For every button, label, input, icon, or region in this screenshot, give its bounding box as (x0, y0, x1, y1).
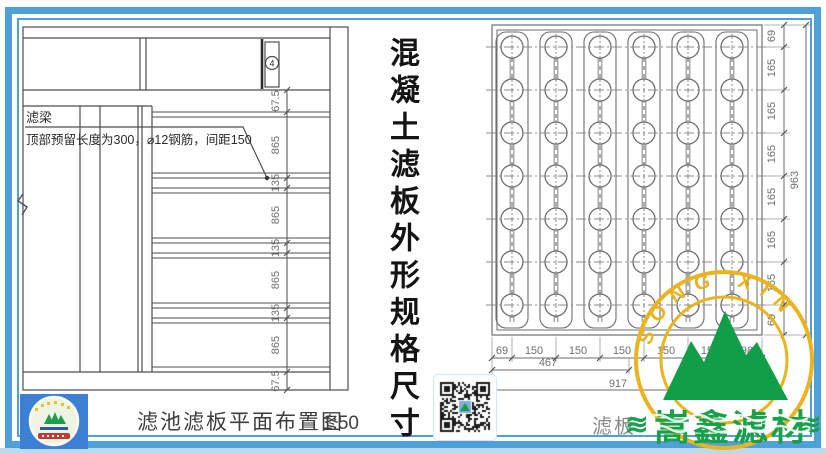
dim-label: 69 (496, 345, 508, 357)
dim-label: 135 (270, 239, 282, 257)
dim-label: 865 (270, 136, 282, 154)
dim-total-label: 963 (789, 171, 801, 189)
left-structure-lines (23, 27, 330, 390)
dim-subtotal-label: 467 (539, 357, 557, 369)
seal-text-bar (40, 427, 68, 430)
dim-label: 67.5 (270, 90, 282, 111)
dim-label: 150 (525, 345, 543, 357)
left-drawing-scale: 1:50 (322, 413, 359, 434)
dim-total-label: 917 (609, 378, 627, 390)
leader-title: 滤梁 (26, 110, 52, 125)
dim-label: 865 (270, 271, 282, 289)
dim-label: 865 (270, 336, 282, 354)
dim-label: 69 (766, 30, 778, 42)
dim-label: 165 (766, 231, 778, 249)
watermark-flourish-right: ≋ (798, 409, 821, 440)
watermark: ≋ 嵩鑫滤材 ≋ (625, 407, 821, 448)
leader-dot (265, 176, 269, 180)
leader-note: 顶部预留长度为300，⌀12钢筋，间距150 (26, 132, 252, 147)
dim-label: 150 (569, 345, 587, 357)
dim-label: 67.5 (270, 370, 282, 391)
dim-label: 165 (766, 188, 778, 206)
left-drawing (18, 27, 348, 390)
dim-label: 135 (270, 304, 282, 322)
blueprint-page: 混凝土滤板外形规格尺寸 4 滤梁 顶部预留长度为300，⌀12钢筋，间距150 … (0, 0, 826, 453)
watermark-flourish-left: ≋ (625, 409, 648, 440)
company-logo (20, 394, 88, 449)
qr-code (438, 380, 492, 434)
left-drawing-caption: 滤池滤板平面布置图 (137, 411, 344, 434)
dim-label: 150 (657, 345, 675, 357)
dim-label: 865 (270, 206, 282, 224)
qr-code-panel (433, 374, 497, 441)
dim-label: 165 (766, 59, 778, 77)
left-dim-chain-labels: 67.5 865 135 865 135 865 135 865 67.5 (270, 90, 282, 391)
company-seal-svg (20, 394, 88, 449)
dim-label: 165 (766, 102, 778, 120)
left-drawing-texts: 4 滤梁 顶部预留长度为300，⌀12钢筋，间距150 67.5 865 135… (26, 59, 359, 435)
dim-label: 165 (766, 145, 778, 163)
filter-plate-bands (152, 112, 330, 372)
detail-marker-number: 4 (269, 59, 274, 69)
cad-drawing-svg: 4 滤梁 顶部预留长度为300，⌀12钢筋，间距150 67.5 865 135… (0, 0, 826, 453)
dim-label: 135 (270, 174, 282, 192)
left-outer-wall (23, 27, 348, 390)
dim-label: 150 (613, 345, 631, 357)
